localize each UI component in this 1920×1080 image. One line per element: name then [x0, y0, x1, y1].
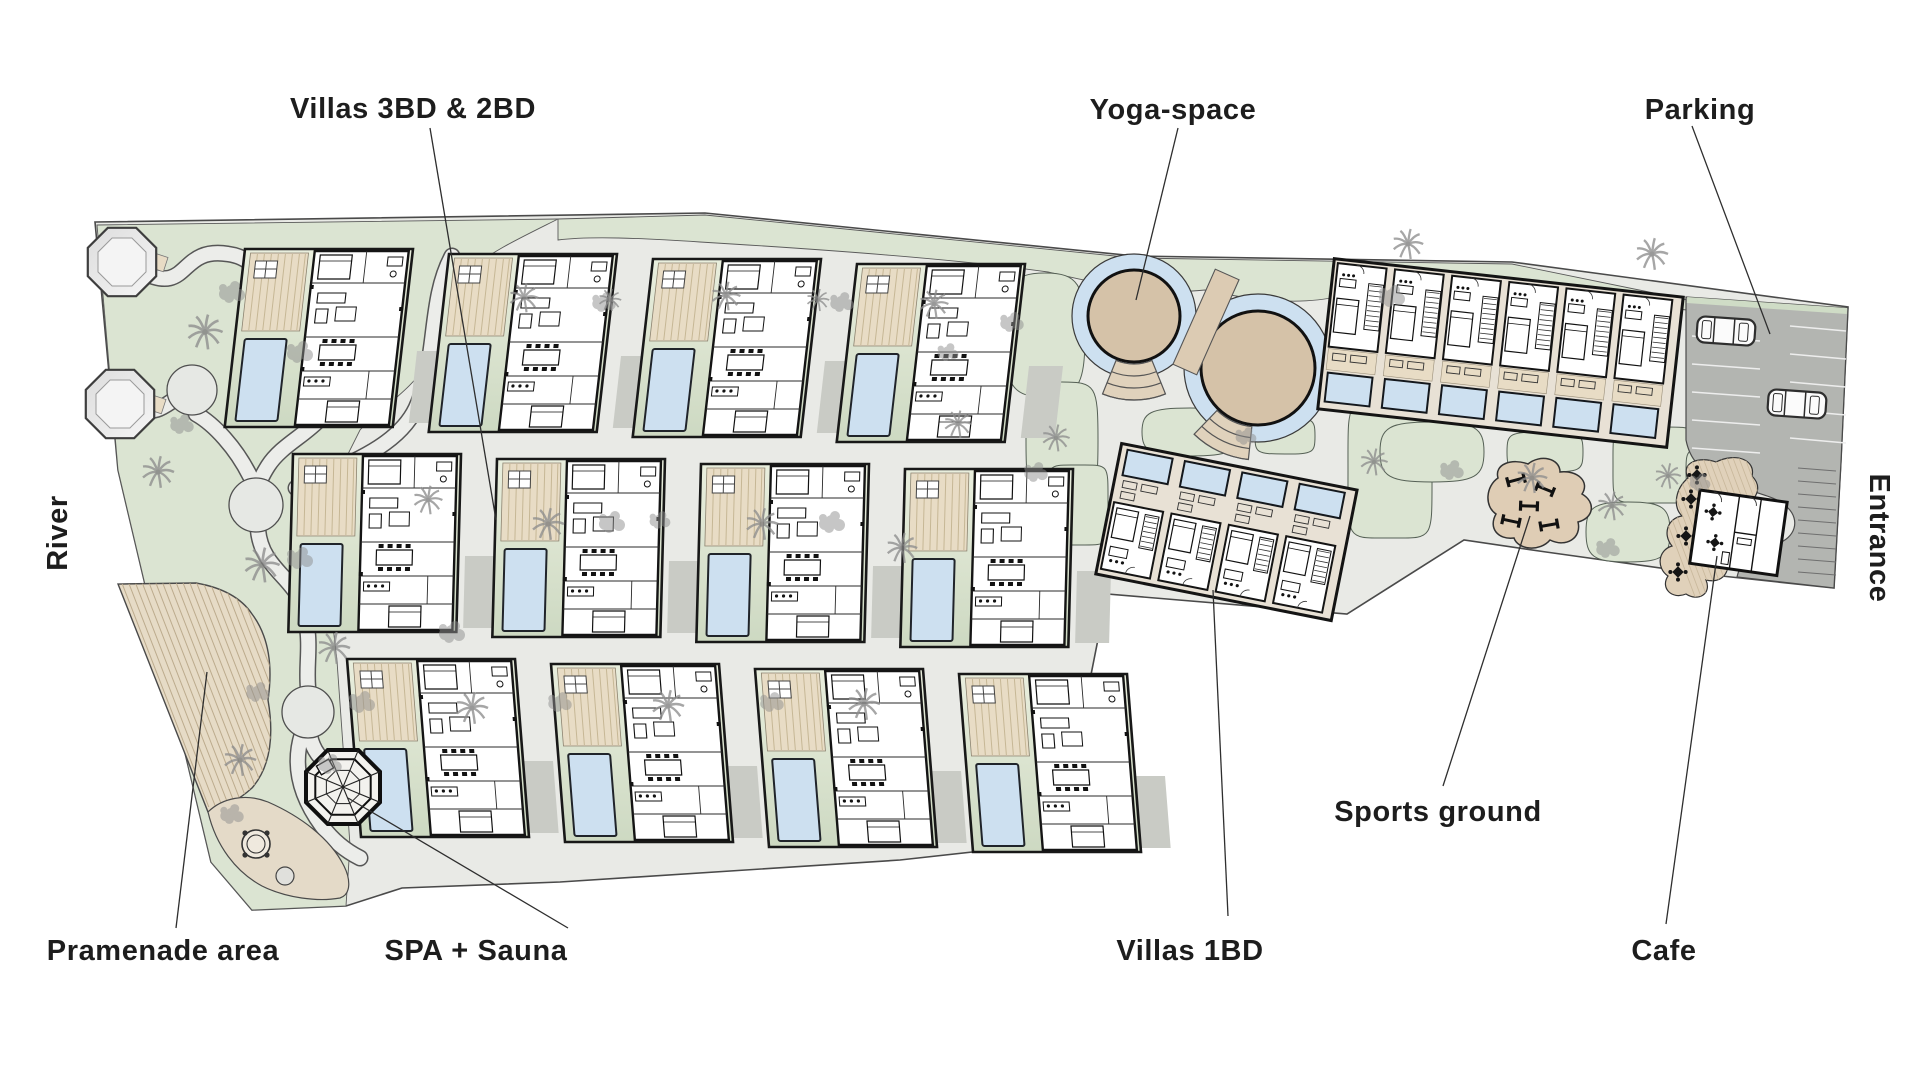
label-entrance: Entrance [1863, 474, 1895, 603]
villa-plot-3bd-2bd [837, 264, 1025, 442]
master-plan-page: Villas 3BD & 2BD Yoga-space Parking Rive… [0, 0, 1920, 1080]
villa-plot-3bd-2bd [696, 464, 869, 642]
palm-tree-icon [1637, 238, 1668, 270]
promenade-planter [276, 867, 294, 885]
villa-plot-3bd-2bd [551, 664, 733, 842]
villa-plot-3bd-2bd [225, 249, 413, 427]
path-plaza [229, 478, 283, 532]
villa-plot-3bd-2bd [755, 669, 937, 847]
spa-sauna-structure [306, 750, 380, 824]
driveway [1075, 571, 1111, 643]
parked-car [1767, 389, 1827, 419]
path-plaza [167, 365, 217, 415]
lawn-patch [1380, 422, 1484, 482]
label-parking: Parking [1645, 94, 1756, 126]
yoga-deck-1 [1088, 270, 1180, 362]
leader-sports-ground [1443, 516, 1530, 786]
label-cafe: Cafe [1631, 935, 1696, 967]
cafe-building [1690, 490, 1787, 576]
master-plan-canvas: Villas 3BD & 2BD Yoga-space Parking Rive… [0, 0, 1920, 1080]
villa-plot-3bd-2bd [492, 459, 665, 637]
label-spa-sauna: SPA + Sauna [384, 935, 567, 967]
path-plaza [282, 686, 334, 738]
leader-villas-1bd [1213, 590, 1228, 916]
villa-plot-3bd-2bd [900, 469, 1073, 647]
label-promenade: Pramenade area [47, 935, 280, 967]
label-sports-ground: Sports ground [1334, 796, 1542, 828]
villa-plot-3bd-2bd [288, 454, 461, 632]
villa-plot-3bd-2bd [429, 254, 617, 432]
parked-car [1696, 316, 1756, 346]
villa-plot-3bd-2bd [959, 674, 1141, 852]
palm-tree-icon [1394, 229, 1423, 259]
leader-cafe [1666, 556, 1717, 924]
label-river: River [42, 495, 74, 571]
label-villas-1bd: Villas 1BD [1116, 935, 1263, 967]
label-yoga-space: Yoga-space [1090, 94, 1257, 126]
label-villas-3bd-2bd: Villas 3BD & 2BD [290, 93, 536, 125]
fire-pit [242, 830, 270, 858]
